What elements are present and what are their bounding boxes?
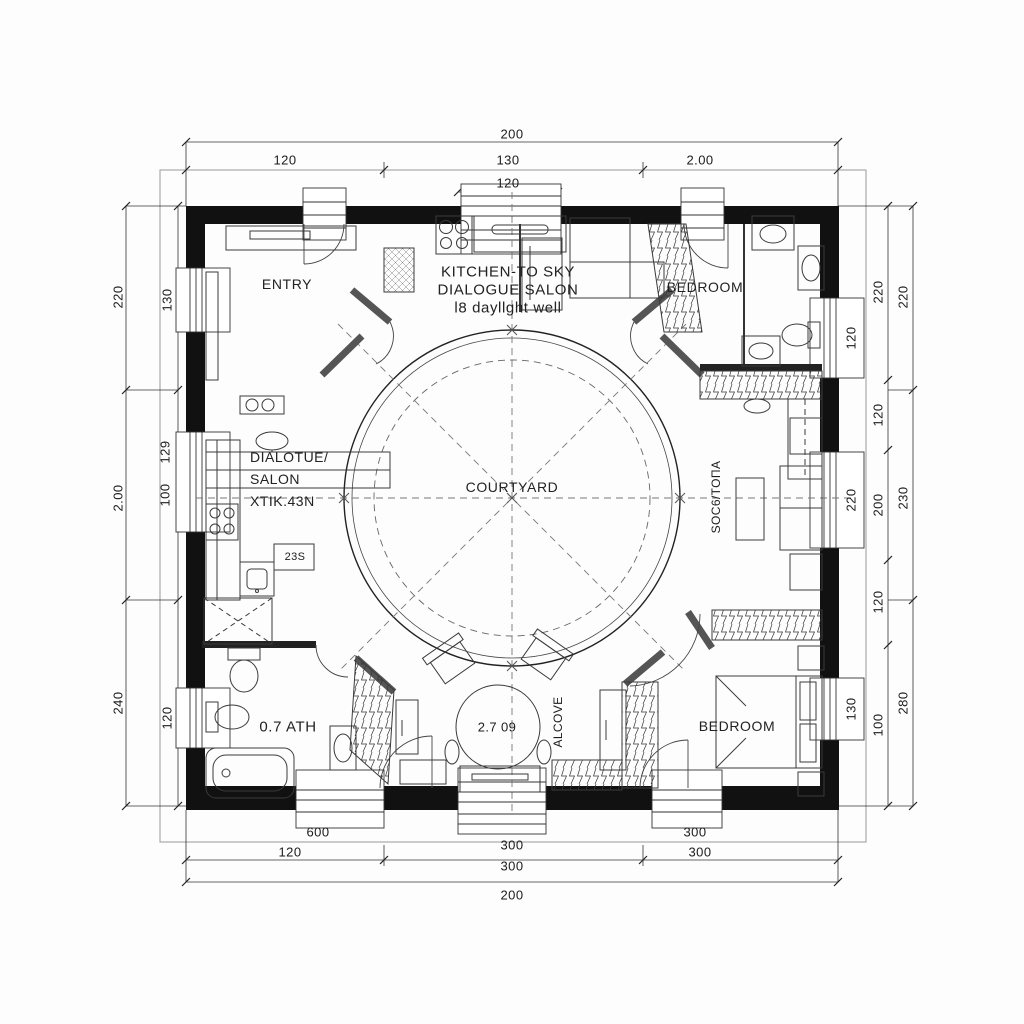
dim-bottom-seg2: 300: [501, 859, 524, 874]
dim-right-in4: 120: [871, 591, 886, 614]
dim-left-out2: 2.00: [111, 485, 126, 512]
dim-right-out3: 280: [896, 692, 911, 715]
dim-left-out1: 220: [111, 286, 126, 309]
dim-right-in2: 120: [871, 404, 886, 427]
dim-top-overall: 200: [501, 127, 524, 142]
room-label-courtyard: COURTYARD: [466, 479, 559, 495]
room-label-salon-line1: DIALOTUE/: [250, 446, 328, 468]
dim-right-out2: 230: [896, 487, 911, 510]
dim-bottom-overall: 200: [501, 888, 524, 903]
room-label-entry: ENTRY: [262, 276, 312, 292]
dim-right-win2: 220: [844, 489, 859, 512]
dim-bottom-seg1: 120: [279, 845, 302, 860]
room-label-bath: 0.7 ATH: [259, 719, 316, 736]
room-label-salon-line3: XTIK.43N: [250, 490, 328, 512]
dim-bottom-win3: 300: [684, 825, 707, 840]
dim-top-seg3: 2.00: [687, 153, 714, 168]
dim-right-win1: 120: [844, 327, 859, 350]
dim-top-seg2: 130: [497, 153, 520, 168]
room-label-salon-line2: SALON: [250, 468, 328, 490]
dim-bottom-win1: 600: [307, 825, 330, 840]
dim-right-in1: 220: [871, 281, 886, 304]
floor-plan: 200 120 130 2.00 120 600 300 300 120 300…: [0, 0, 1024, 1024]
cabinet-label: 23S: [285, 551, 306, 563]
room-label-bedroom-top: BEDROOM: [667, 279, 744, 295]
dim-right-win3: 130: [844, 698, 859, 721]
room-label-kitchen-line3: l8 dayllght well: [454, 300, 561, 317]
dim-right-out1: 220: [896, 286, 911, 309]
dim-left-win1: 130: [160, 289, 175, 312]
dim-top-seg1: 120: [274, 153, 297, 168]
dim-left-win2a: 129: [158, 441, 173, 464]
room-label-sofa: SOC6/TOΠA: [709, 461, 723, 534]
dim-right-in5: 100: [871, 714, 886, 737]
room-label-kitchen-line2: DIALOGUE SALON: [438, 282, 579, 299]
bedroom-partition: [700, 364, 822, 371]
dim-left-win3: 120: [160, 707, 175, 730]
room-label-kitchen-line1: KITCHEN-TO SKY: [441, 264, 575, 281]
table-label: 2.7 09: [478, 720, 517, 735]
dim-left-out3: 240: [111, 692, 126, 715]
room-label-alcove: ALCOVE: [551, 696, 565, 747]
dim-bottom-win2: 300: [501, 838, 524, 853]
dim-right-in3: 200: [871, 494, 886, 517]
room-label-bedroom-bottom: BEDROOM: [699, 718, 776, 734]
room-label-salon: DIALOTUE/ SALON XTIK.43N: [250, 446, 328, 512]
dim-bottom-seg3: 300: [689, 845, 712, 860]
dim-top-sub: 120: [497, 176, 520, 191]
dim-left-win2b: 100: [158, 484, 173, 507]
